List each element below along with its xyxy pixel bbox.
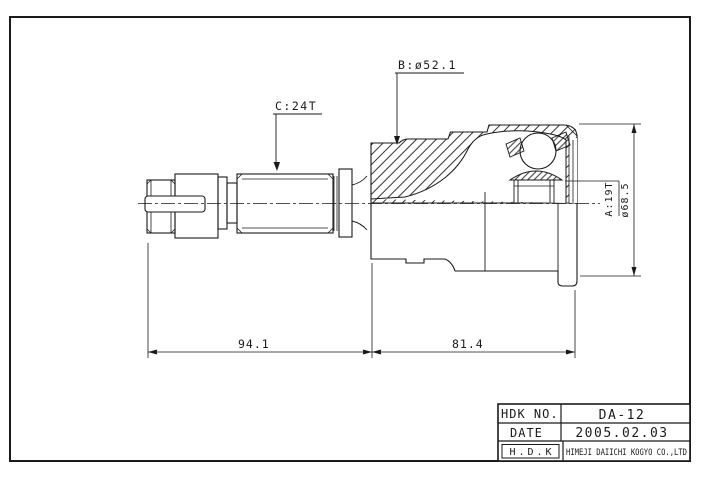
dim-814-text: 81.4 xyxy=(452,337,484,351)
hdk-no-label: HDK NO. xyxy=(501,407,559,421)
cv-joint-part-view xyxy=(138,125,600,286)
title-block: HDK NO. DA-12 DATE 2005.02.03 H.D.K HIME… xyxy=(498,404,690,461)
label-dia-text: ø68.5 xyxy=(620,182,631,217)
spline-section xyxy=(237,169,367,237)
drawing-sheet: B:ø52.1 C:24T 94.1 81.4 xyxy=(0,0,720,480)
annotations: B:ø52.1 C:24T 94.1 81.4 xyxy=(148,58,641,358)
label-b-text: B:ø52.1 xyxy=(398,58,457,72)
label-c-text: C:24T xyxy=(275,99,317,113)
label-c-leader: C:24T xyxy=(273,99,322,171)
cotter-slot xyxy=(145,196,205,212)
hdk-no-value: DA-12 xyxy=(599,408,646,423)
stub-shaft xyxy=(145,174,237,238)
date-label: DATE xyxy=(510,426,543,440)
ball-bearing xyxy=(520,133,556,169)
engineering-drawing-canvas: B:ø52.1 C:24T 94.1 81.4 xyxy=(0,0,720,480)
dim-941-text: 94.1 xyxy=(238,337,270,351)
border-frame xyxy=(10,17,690,461)
company-abbr: H.D.K xyxy=(509,447,554,458)
label-a-text: A:19T xyxy=(604,181,615,216)
dimension-814: 81.4 xyxy=(372,290,575,358)
company-name: HIMEJI DAIICHI KOGYO CO.,LTD xyxy=(566,448,687,458)
joint-body-lower xyxy=(371,203,577,286)
dimension-941: 94.1 xyxy=(148,243,372,358)
date-value: 2005.02.03 xyxy=(575,426,668,441)
